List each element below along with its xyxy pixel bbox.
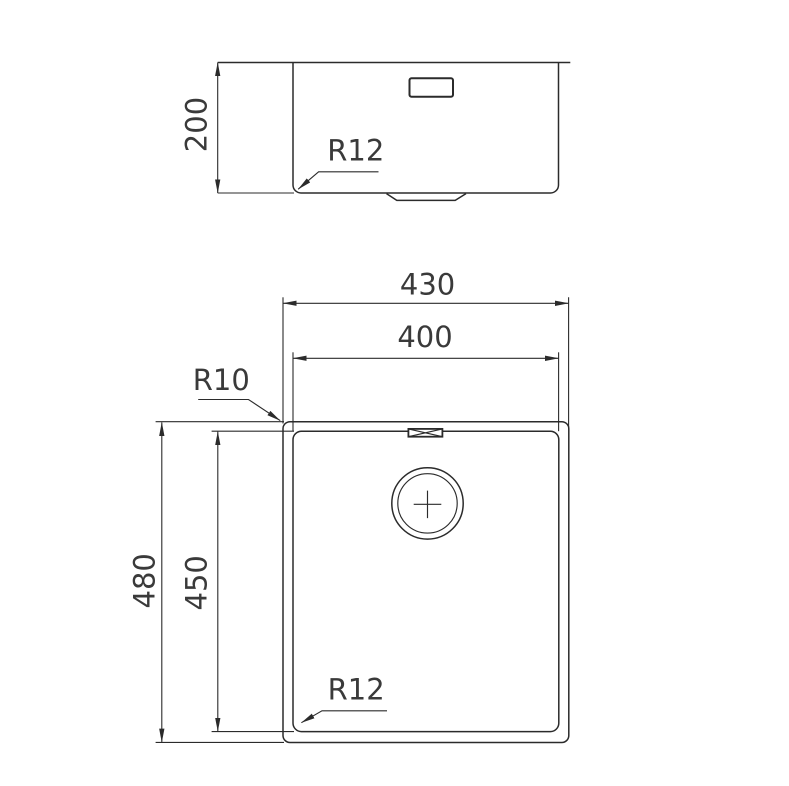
technical-drawing-page: 200 R12 430 400 R10 480 xyxy=(0,0,789,786)
side-corner-radius-leader xyxy=(298,172,378,189)
plan-view: 430 400 R10 480 450 R12 xyxy=(127,268,569,743)
sink-technical-drawing: 200 R12 430 400 R10 480 xyxy=(0,0,789,786)
plan-rim-corner-radius-leader xyxy=(198,400,280,421)
plan-bowl-corner-radius-leader xyxy=(301,711,387,723)
plan-bowl-corner-radius-label: R12 xyxy=(328,672,385,706)
side-drain-protrusion xyxy=(387,194,467,201)
plan-rim-corner-radius-label: R10 xyxy=(193,363,250,397)
plan-outer-rim-outline xyxy=(283,422,569,743)
plan-bowl-length-label: 450 xyxy=(179,555,213,610)
plan-outer-length-label: 480 xyxy=(127,553,161,608)
plan-drain-center-cross xyxy=(414,491,442,518)
side-corner-radius-label: R12 xyxy=(327,134,384,168)
plan-outer-width-label: 430 xyxy=(400,268,455,302)
side-view: 200 R12 xyxy=(179,63,570,201)
side-overflow-slot xyxy=(410,78,454,96)
plan-bowl-width-label: 400 xyxy=(397,320,452,354)
side-depth-dimension-label: 200 xyxy=(179,97,213,152)
side-bowl-outline xyxy=(293,63,559,194)
